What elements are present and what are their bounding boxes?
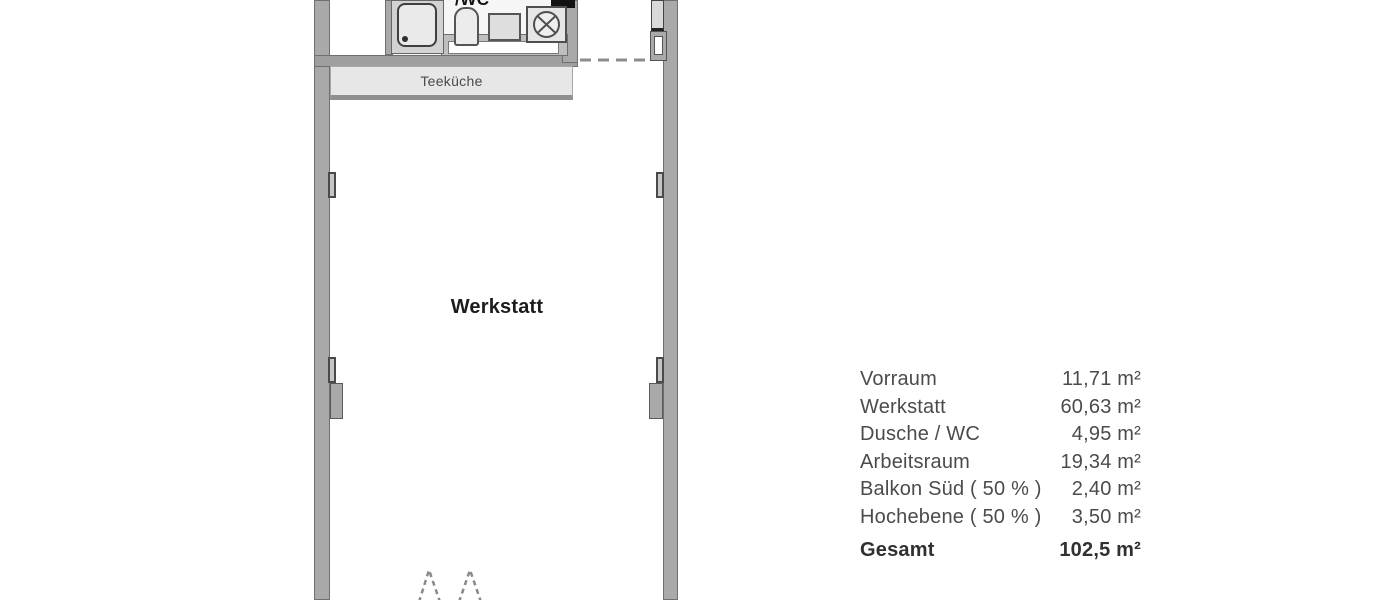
right-wall-window-upper [656,172,664,198]
room-name: Dusche / WC [860,423,980,446]
dashed-annotations [0,0,1400,600]
table-row: Arbeitsraum 19,34 m² [860,449,1141,477]
left-wall-pier [330,383,343,419]
table-row: Dusche / WC 4,95 m² [860,421,1141,449]
room-area: 60,63 m² [1060,396,1141,419]
entry-door-jamb-niche [654,36,663,55]
table-row: Balkon Süd ( 50 % ) 2,40 m² [860,476,1141,504]
left-wall-window-lower [328,357,336,383]
floorplan-screenshot: Teeküche Werkstatt /WC Vorraum 11,71 m² … [0,0,1400,600]
room-name: Hochebene ( 50 % ) [860,506,1041,529]
left-outer-wall [314,0,330,600]
room-name: Vorraum [860,368,937,391]
teekueche-label: Teeküche [420,73,482,89]
washbasin-icon [488,13,521,41]
shower-drain-icon [402,36,408,42]
toilet-icon [454,7,479,46]
room-area: 11,71 m² [1062,368,1141,391]
room-area: 19,34 m² [1060,451,1141,474]
werkstatt-room-label: Werkstatt [417,296,577,319]
room-name: Arbeitsraum [860,451,970,474]
total-area: 102,5 m² [1059,539,1141,562]
dusche-wc-room-label: /WC [455,0,525,10]
teekueche-counter: Teeküche [330,66,573,100]
table-row: Vorraum 11,71 m² [860,366,1141,394]
room-name: Balkon Süd ( 50 % ) [860,478,1042,501]
stair-arrow-icon [419,570,440,600]
left-wall-window-upper [328,172,336,198]
entry-door-jamb [650,31,667,61]
table-row: Hochebene ( 50 % ) 3,50 m² [860,504,1141,532]
room-area: 2,40 m² [1072,478,1141,501]
total-label: Gesamt [860,539,935,562]
table-row-total: Gesamt 102,5 m² [860,537,1141,565]
table-row: Werkstatt 60,63 m² [860,394,1141,422]
right-outer-wall [663,0,678,600]
room-top-left [331,0,385,55]
stair-arrow-icon [459,570,481,600]
washing-machine-icon [526,6,567,43]
area-table: Vorraum 11,71 m² Werkstatt 60,63 m² Dusc… [860,366,1141,565]
room-name: Werkstatt [860,396,946,419]
room-area: 3,50 m² [1072,506,1141,529]
right-wall-window-lower [656,357,664,383]
room-area: 4,95 m² [1072,423,1141,446]
right-wall-pier [649,383,663,419]
entry-door-leaf [651,0,664,31]
